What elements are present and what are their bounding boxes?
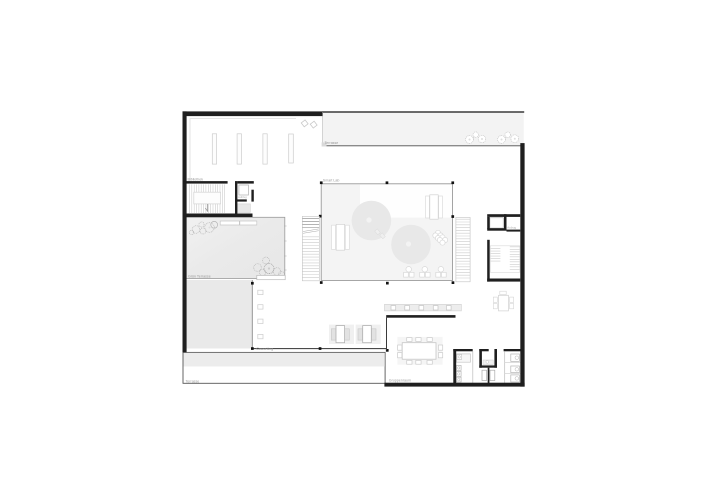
svg-text:Terrasse: Terrasse <box>325 141 339 145</box>
svg-text:Gruppenraum: Gruppenraum <box>389 378 411 382</box>
svg-text:Aufzug: Aufzug <box>507 226 516 230</box>
svg-text:Smart Lab: Smart Lab <box>323 178 340 182</box>
svg-text:Coworking: Coworking <box>256 347 273 351</box>
svg-text:Bibliothek: Bibliothek <box>188 178 204 182</box>
svg-text:Grün Terrasse: Grün Terrasse <box>188 275 211 279</box>
svg-text:Terrasse: Terrasse <box>186 380 200 384</box>
svg-text:Aufzug: Aufzug <box>238 195 247 199</box>
